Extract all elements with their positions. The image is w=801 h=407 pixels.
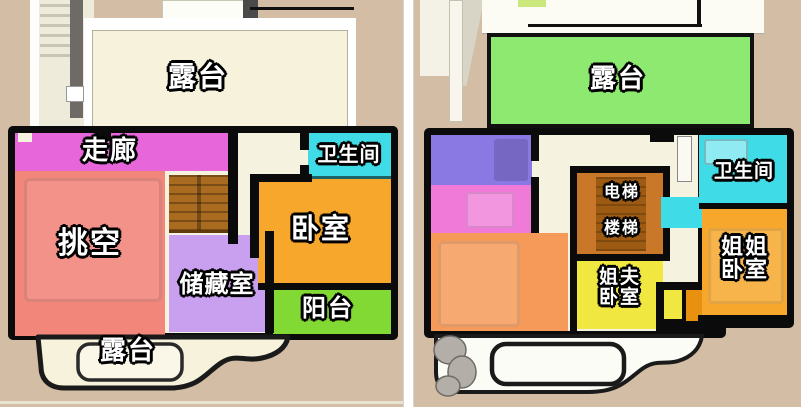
room-corridor[interactable]	[15, 133, 230, 171]
roof-edge-line	[528, 24, 702, 27]
interior-wall	[531, 135, 539, 161]
roof-edge-line	[697, 0, 701, 26]
interior-wall	[698, 315, 790, 327]
interior-wall	[250, 174, 259, 258]
interior-wall	[570, 261, 577, 338]
door-panel	[677, 136, 692, 182]
ground-terrace-outline	[428, 334, 728, 404]
interior-wall	[531, 177, 539, 233]
room-brother-in-law-bedroom[interactable]	[577, 261, 663, 329]
footer-line	[0, 401, 403, 404]
closet-cell-yellow	[664, 290, 682, 319]
interior-wall	[250, 174, 312, 182]
interior-wall	[228, 130, 238, 244]
room-terrace-right[interactable]	[487, 33, 754, 128]
room-terrace-bottom[interactable]	[16, 334, 346, 406]
room-bathroom-left[interactable]	[308, 133, 391, 179]
interior-wall	[300, 133, 309, 150]
interior-wall	[265, 231, 274, 333]
room-terrace-top[interactable]	[92, 30, 348, 128]
bathtub-outline	[704, 139, 748, 165]
bed-outline	[24, 178, 162, 302]
room-balcony[interactable]	[273, 289, 391, 334]
bed-outline	[708, 228, 784, 304]
roof-edge-line	[250, 7, 354, 10]
floor-plan-canvas: 露台 走廊 挑空 卫生间 卧室 储藏室 阳台 露台	[0, 0, 801, 407]
stairwell-core	[596, 177, 646, 251]
exterior-wall-strip	[449, 0, 463, 122]
door-jamb	[95, 133, 111, 141]
exterior-window-3d	[66, 86, 84, 102]
room-stairs[interactable]	[169, 175, 229, 233]
interior-wall	[258, 283, 391, 290]
dining-table-outline	[466, 192, 514, 228]
wall-notch	[18, 133, 32, 142]
room-bedroom[interactable]	[258, 179, 391, 283]
frame-divider	[403, 0, 414, 407]
sofa-outline	[438, 241, 520, 327]
door-jamb	[650, 131, 674, 142]
roof-plant-strip	[518, 0, 546, 7]
kitchen-counter-outline	[494, 139, 528, 181]
